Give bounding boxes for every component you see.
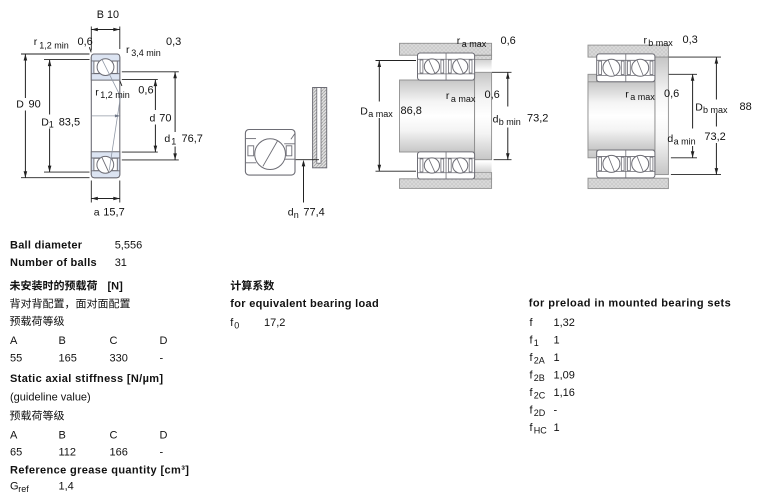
svg-text:d: d (150, 113, 156, 125)
svg-text:(guideline value): (guideline value) (10, 392, 91, 404)
svg-text:2A: 2A (534, 355, 545, 365)
svg-text:Ball diameter: Ball diameter (10, 240, 83, 252)
svg-text:0: 0 (234, 320, 239, 330)
svg-text:D: D (16, 99, 24, 111)
svg-text:d: d (493, 113, 499, 125)
svg-text:1,2 min: 1,2 min (100, 90, 130, 100)
svg-text:G: G (10, 481, 19, 493)
svg-text:1,09: 1,09 (554, 370, 575, 382)
svg-text:Reference grease quantity [cm³: Reference grease quantity [cm³] (10, 465, 189, 477)
svg-text:a max: a max (462, 39, 487, 49)
svg-text:A: A (10, 430, 18, 442)
svg-text:73,2: 73,2 (704, 131, 725, 143)
svg-text:3,4 min: 3,4 min (131, 48, 161, 58)
svg-text:f: f (530, 317, 534, 329)
svg-text:1: 1 (534, 338, 539, 348)
svg-text:B: B (59, 430, 66, 442)
svg-text:88: 88 (740, 101, 752, 113)
svg-text:for equivalent bearing load: for equivalent bearing load (230, 298, 379, 310)
svg-text:B: B (59, 335, 66, 347)
svg-text:Number of balls: Number of balls (10, 257, 97, 269)
svg-text:76,7: 76,7 (182, 133, 203, 145)
svg-text:b max: b max (648, 38, 673, 48)
svg-text:5,556: 5,556 (115, 240, 143, 252)
svg-text:D: D (695, 102, 703, 114)
svg-text:1: 1 (49, 120, 54, 130)
svg-text:-: - (554, 405, 558, 417)
svg-text:0,6: 0,6 (485, 89, 500, 101)
svg-text:0,6: 0,6 (664, 88, 679, 100)
svg-text:73,2: 73,2 (527, 112, 548, 124)
svg-text:65: 65 (10, 447, 22, 459)
svg-text:D: D (160, 335, 168, 347)
svg-text:a max: a max (451, 94, 476, 104)
svg-text:2B: 2B (534, 373, 545, 383)
svg-text:15,7: 15,7 (103, 207, 124, 219)
svg-text:D: D (160, 430, 168, 442)
svg-text:165: 165 (59, 353, 77, 365)
svg-text:1: 1 (171, 137, 176, 147)
svg-text:D: D (360, 106, 368, 118)
svg-text:0,6: 0,6 (501, 35, 516, 47)
svg-text:a max: a max (630, 92, 655, 102)
svg-text:-: - (160, 447, 164, 459)
svg-text:55: 55 (10, 353, 22, 365)
svg-text:0,6: 0,6 (138, 85, 153, 97)
svg-text:1,2 min: 1,2 min (39, 40, 69, 50)
svg-text:for preload in mounted bearing: for preload in mounted bearing sets (529, 298, 731, 310)
svg-text:1,16: 1,16 (554, 387, 575, 399)
svg-text:C: C (110, 430, 118, 442)
svg-text:a max: a max (368, 109, 393, 119)
svg-text:0,6: 0,6 (78, 36, 93, 48)
svg-text:1,4: 1,4 (59, 481, 74, 493)
svg-text:r: r (457, 35, 461, 47)
svg-text:86,8: 86,8 (401, 105, 422, 117)
svg-text:1: 1 (554, 335, 560, 347)
svg-text:166: 166 (110, 447, 128, 459)
svg-text:2C: 2C (534, 390, 546, 400)
svg-text:r: r (126, 44, 130, 56)
svg-text:83,5: 83,5 (59, 116, 80, 128)
svg-text:-: - (160, 353, 164, 365)
svg-text:r: r (644, 35, 648, 47)
svg-text:a min: a min (674, 137, 696, 147)
svg-text:B 10: B 10 (97, 9, 119, 21)
svg-text:r: r (95, 87, 99, 99)
svg-text:0,3: 0,3 (683, 34, 698, 46)
svg-text:Static axial stiffness [N/µm]: Static axial stiffness [N/µm] (10, 373, 163, 385)
svg-text:a: a (94, 207, 100, 219)
svg-text:r: r (625, 89, 629, 101)
svg-text:b min: b min (499, 117, 521, 127)
svg-text:17,2: 17,2 (264, 317, 285, 329)
svg-text:ref: ref (18, 484, 29, 494)
svg-text:[N]: [N] (108, 281, 124, 293)
svg-text:77,4: 77,4 (303, 207, 324, 219)
svg-text:d: d (164, 133, 170, 145)
svg-text:31: 31 (115, 257, 127, 269)
svg-text:r: r (34, 36, 38, 48)
svg-text:C: C (110, 335, 118, 347)
svg-text:112: 112 (59, 447, 77, 459)
svg-text:r: r (446, 90, 450, 102)
svg-text:330: 330 (110, 353, 128, 365)
svg-text:n: n (294, 210, 299, 220)
svg-text:1,32: 1,32 (554, 317, 575, 329)
svg-text:0,3: 0,3 (166, 36, 181, 48)
svg-text:d: d (667, 133, 673, 145)
svg-text:90: 90 (29, 99, 41, 111)
svg-text:A: A (10, 335, 18, 347)
svg-text:b max: b max (703, 105, 728, 115)
svg-text:HC: HC (534, 425, 547, 435)
svg-text:70: 70 (159, 113, 171, 125)
svg-text:1: 1 (554, 422, 560, 434)
svg-text:1: 1 (554, 352, 560, 364)
svg-text:2D: 2D (534, 408, 546, 418)
